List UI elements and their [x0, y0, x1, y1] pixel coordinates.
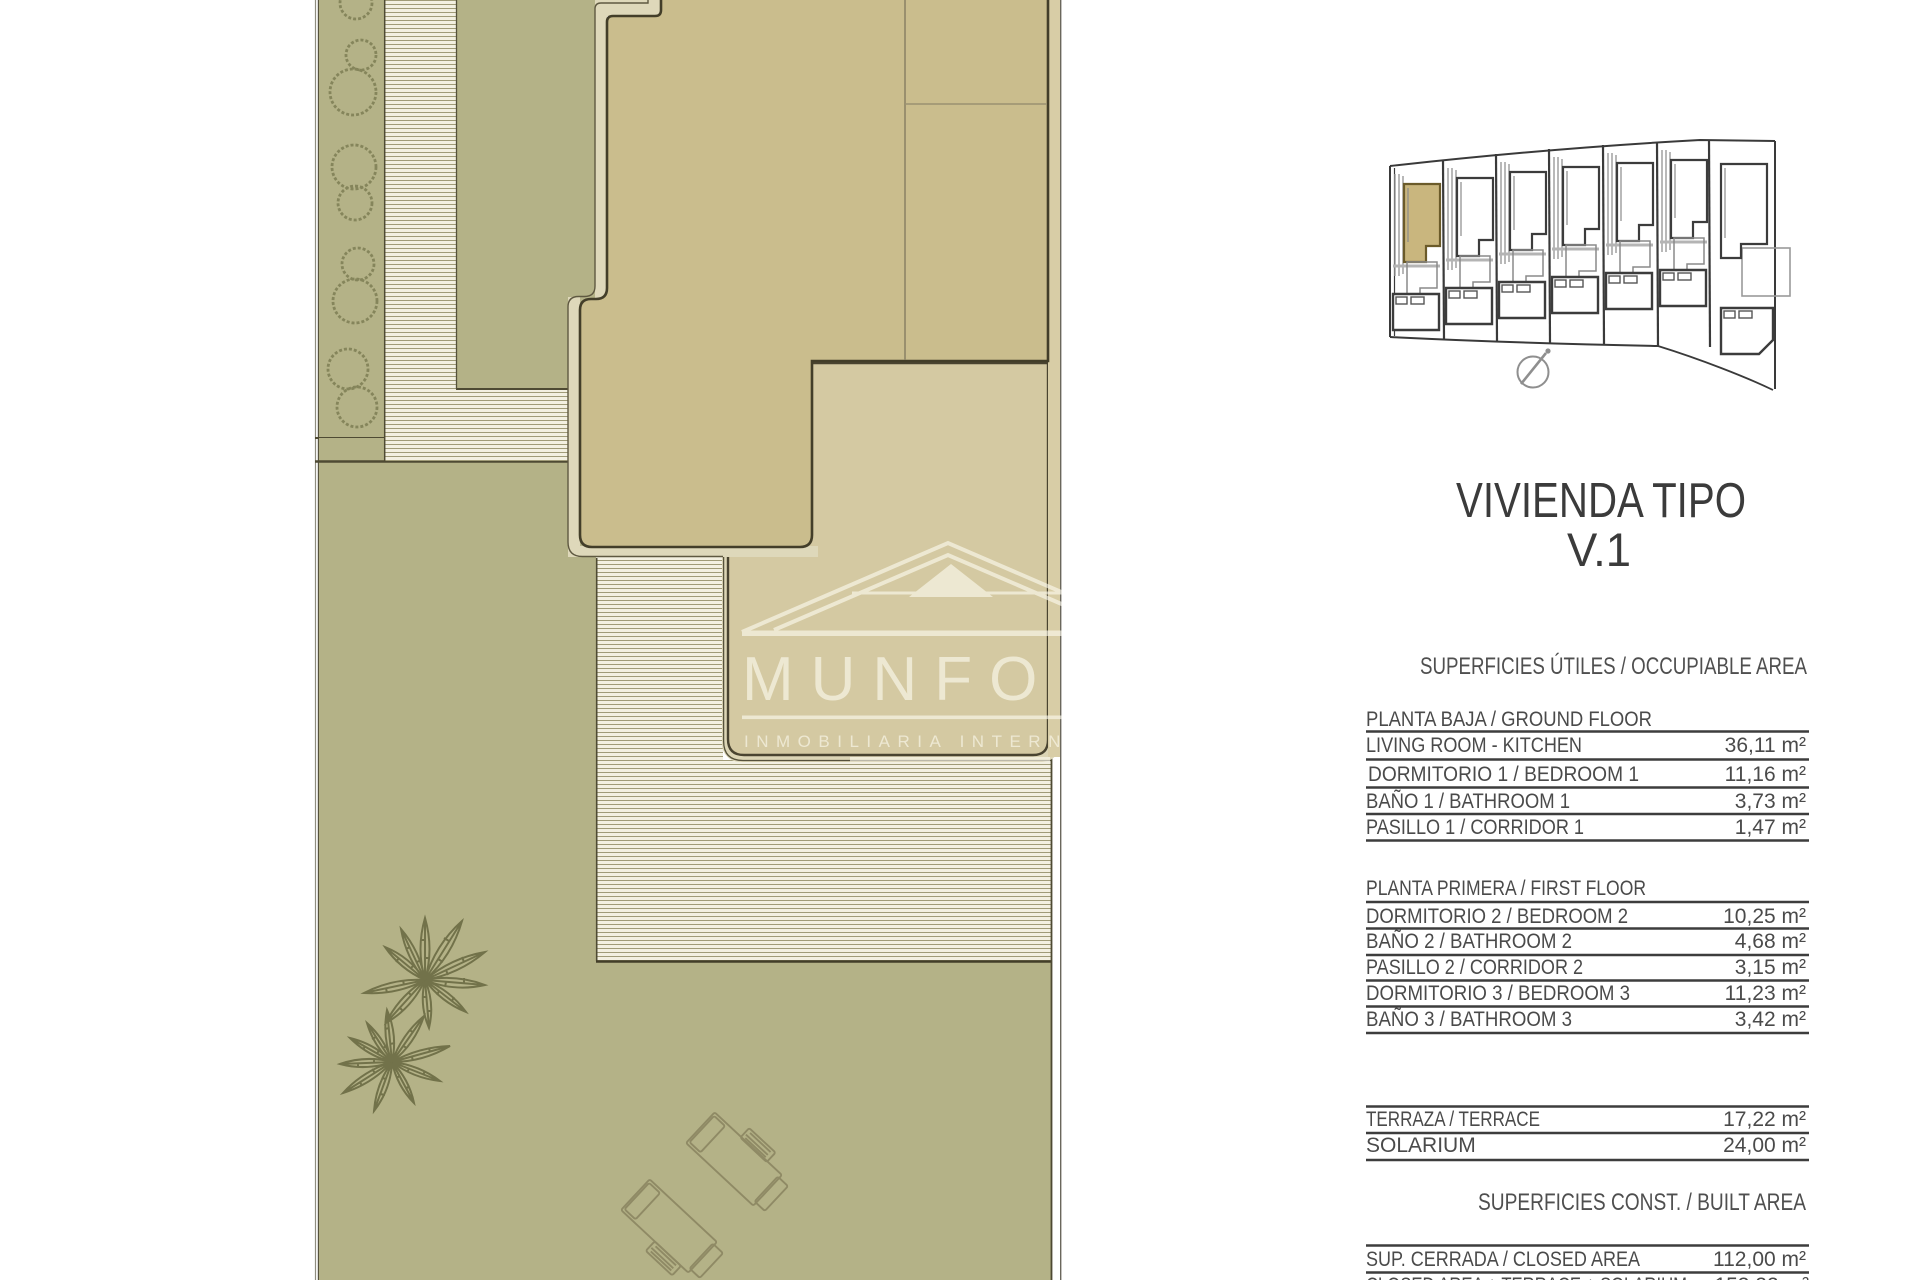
svg-text:DORMITORIO 2 / BEDROOM 2: DORMITORIO 2 / BEDROOM 2: [1366, 905, 1628, 928]
svg-text:1,47 m²: 1,47 m²: [1735, 816, 1806, 839]
svg-text:112,00 m²: 112,00 m²: [1713, 1248, 1806, 1271]
svg-text:11,16 m²: 11,16 m²: [1725, 763, 1806, 786]
svg-text:153,22 m²: 153,22 m²: [1714, 1274, 1809, 1280]
svg-text:TERRAZA / TERRACE: TERRAZA / TERRACE: [1366, 1108, 1540, 1131]
svg-text:36,11 m²: 36,11 m²: [1725, 734, 1806, 757]
svg-text:SUPERFICIES CONST. / BUILT AR: SUPERFICIES CONST. / BUILT AREA: [1478, 1189, 1806, 1216]
svg-text:PASILLO 1 / CORRIDOR 1: PASILLO 1 / CORRIDOR 1: [1366, 816, 1584, 839]
svg-text:17,22 m²: 17,22 m²: [1723, 1108, 1806, 1131]
svg-text:MUNFO: MUNFO: [742, 645, 1054, 714]
svg-text:11,23 m²: 11,23 m²: [1725, 982, 1806, 1005]
svg-text:10,25 m²: 10,25 m²: [1723, 905, 1806, 928]
svg-text:3,42 m²: 3,42 m²: [1735, 1008, 1806, 1031]
svg-text:4,68 m²: 4,68 m²: [1735, 930, 1806, 953]
svg-text:BAÑO 3 / BATHROOM 3: BAÑO 3 / BATHROOM 3: [1366, 1007, 1572, 1031]
svg-text:CLOSED AREA + TERRACE + SOLARI: CLOSED AREA + TERRACE + SOLARIUM: [1366, 1274, 1687, 1280]
svg-text:DORMITORIO 3 / BEDROOM 3: DORMITORIO 3 / BEDROOM 3: [1366, 982, 1630, 1005]
svg-text:LIVING ROOM - KITCHEN: LIVING ROOM - KITCHEN: [1366, 734, 1582, 757]
svg-text:3,73 m²: 3,73 m²: [1735, 790, 1806, 813]
svg-text:PASILLO 2 / CORRIDOR 2: PASILLO 2 / CORRIDOR 2: [1366, 956, 1583, 979]
svg-text:DORMITORIO 1 / BEDROOM 1: DORMITORIO 1 / BEDROOM 1: [1368, 763, 1639, 786]
svg-text:SUP. CERRADA / CLOSED AREA: SUP. CERRADA / CLOSED AREA: [1366, 1248, 1640, 1271]
svg-text:VIVIENDA TIPO: VIVIENDA TIPO: [1456, 474, 1746, 528]
svg-text:3,15 m²: 3,15 m²: [1735, 956, 1806, 979]
svg-text:BAÑO 1 / BATHROOM 1: BAÑO 1 / BATHROOM 1: [1366, 789, 1570, 813]
svg-text:SOLARIUM: SOLARIUM: [1366, 1134, 1476, 1157]
svg-text:SUPERFICIES ÚTILES / OCCUPIABL: SUPERFICIES ÚTILES / OCCUPIABLE AREA: [1420, 653, 1807, 680]
svg-text:24,00 m²: 24,00 m²: [1723, 1134, 1806, 1157]
svg-text:PLANTA BAJA / GROUND FLOOR: PLANTA BAJA / GROUND FLOOR: [1366, 708, 1652, 731]
svg-text:BAÑO 2 / BATHROOM 2: BAÑO 2 / BATHROOM 2: [1366, 929, 1572, 953]
svg-text:V.1: V.1: [1567, 523, 1631, 576]
svg-text:PLANTA PRIMERA / FIRST FLOOR: PLANTA PRIMERA / FIRST FLOOR: [1366, 877, 1646, 900]
